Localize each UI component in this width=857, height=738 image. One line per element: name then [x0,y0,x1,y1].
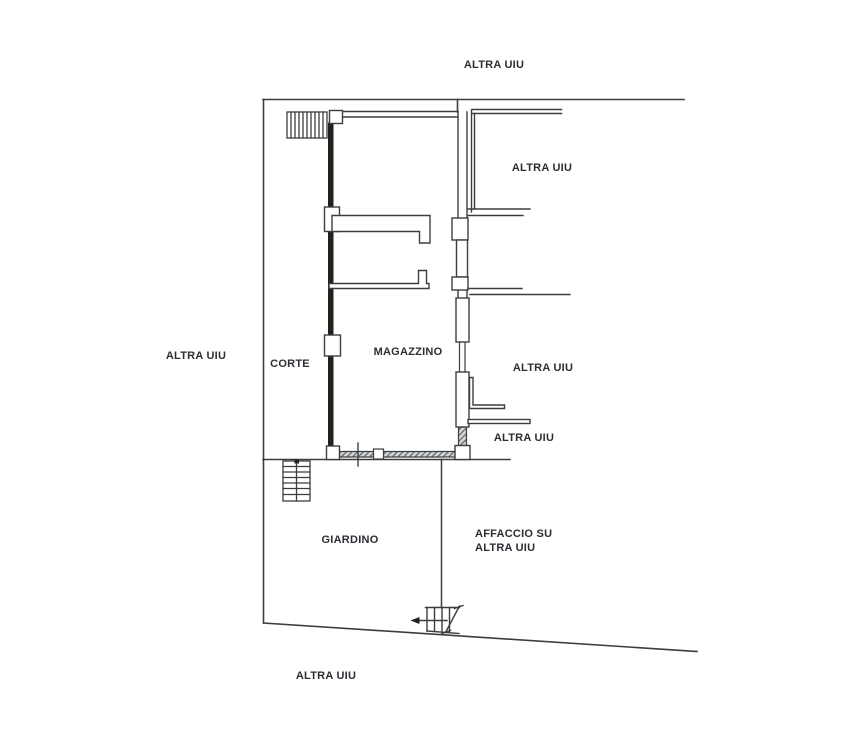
floorplan-drawing [0,0,857,738]
label-affaccio-altra-uiu: ALTRA UIU [475,542,535,554]
floorplan-page: ALTRA UIU ALTRA UIU ALTRA UIU CORTE MAGA… [0,0,857,738]
label-affaccio-su: AFFACCIO SU [475,528,552,540]
label-altra-uiu-lower-right: ALTRA UIU [494,432,554,444]
magazzino-partitions [329,216,430,289]
label-giardino: GIARDINO [322,534,379,546]
label-altra-uiu-left: ALTRA UIU [166,350,226,362]
label-corte: CORTE [270,358,310,370]
label-altra-uiu-top: ALTRA UIU [464,59,524,71]
label-altra-uiu-upper-right: ALTRA UIU [512,162,572,174]
stairs-top-left-icon [287,112,327,138]
label-altra-uiu-bottom: ALTRA UIU [296,670,356,682]
stairs-courtyard-icon [283,460,310,502]
right-unit-walls [468,110,570,424]
stairs-bottom-entry-icon [411,606,464,634]
label-altra-uiu-mid-right: ALTRA UIU [513,362,573,374]
label-magazzino: MAGAZZINO [374,346,443,358]
